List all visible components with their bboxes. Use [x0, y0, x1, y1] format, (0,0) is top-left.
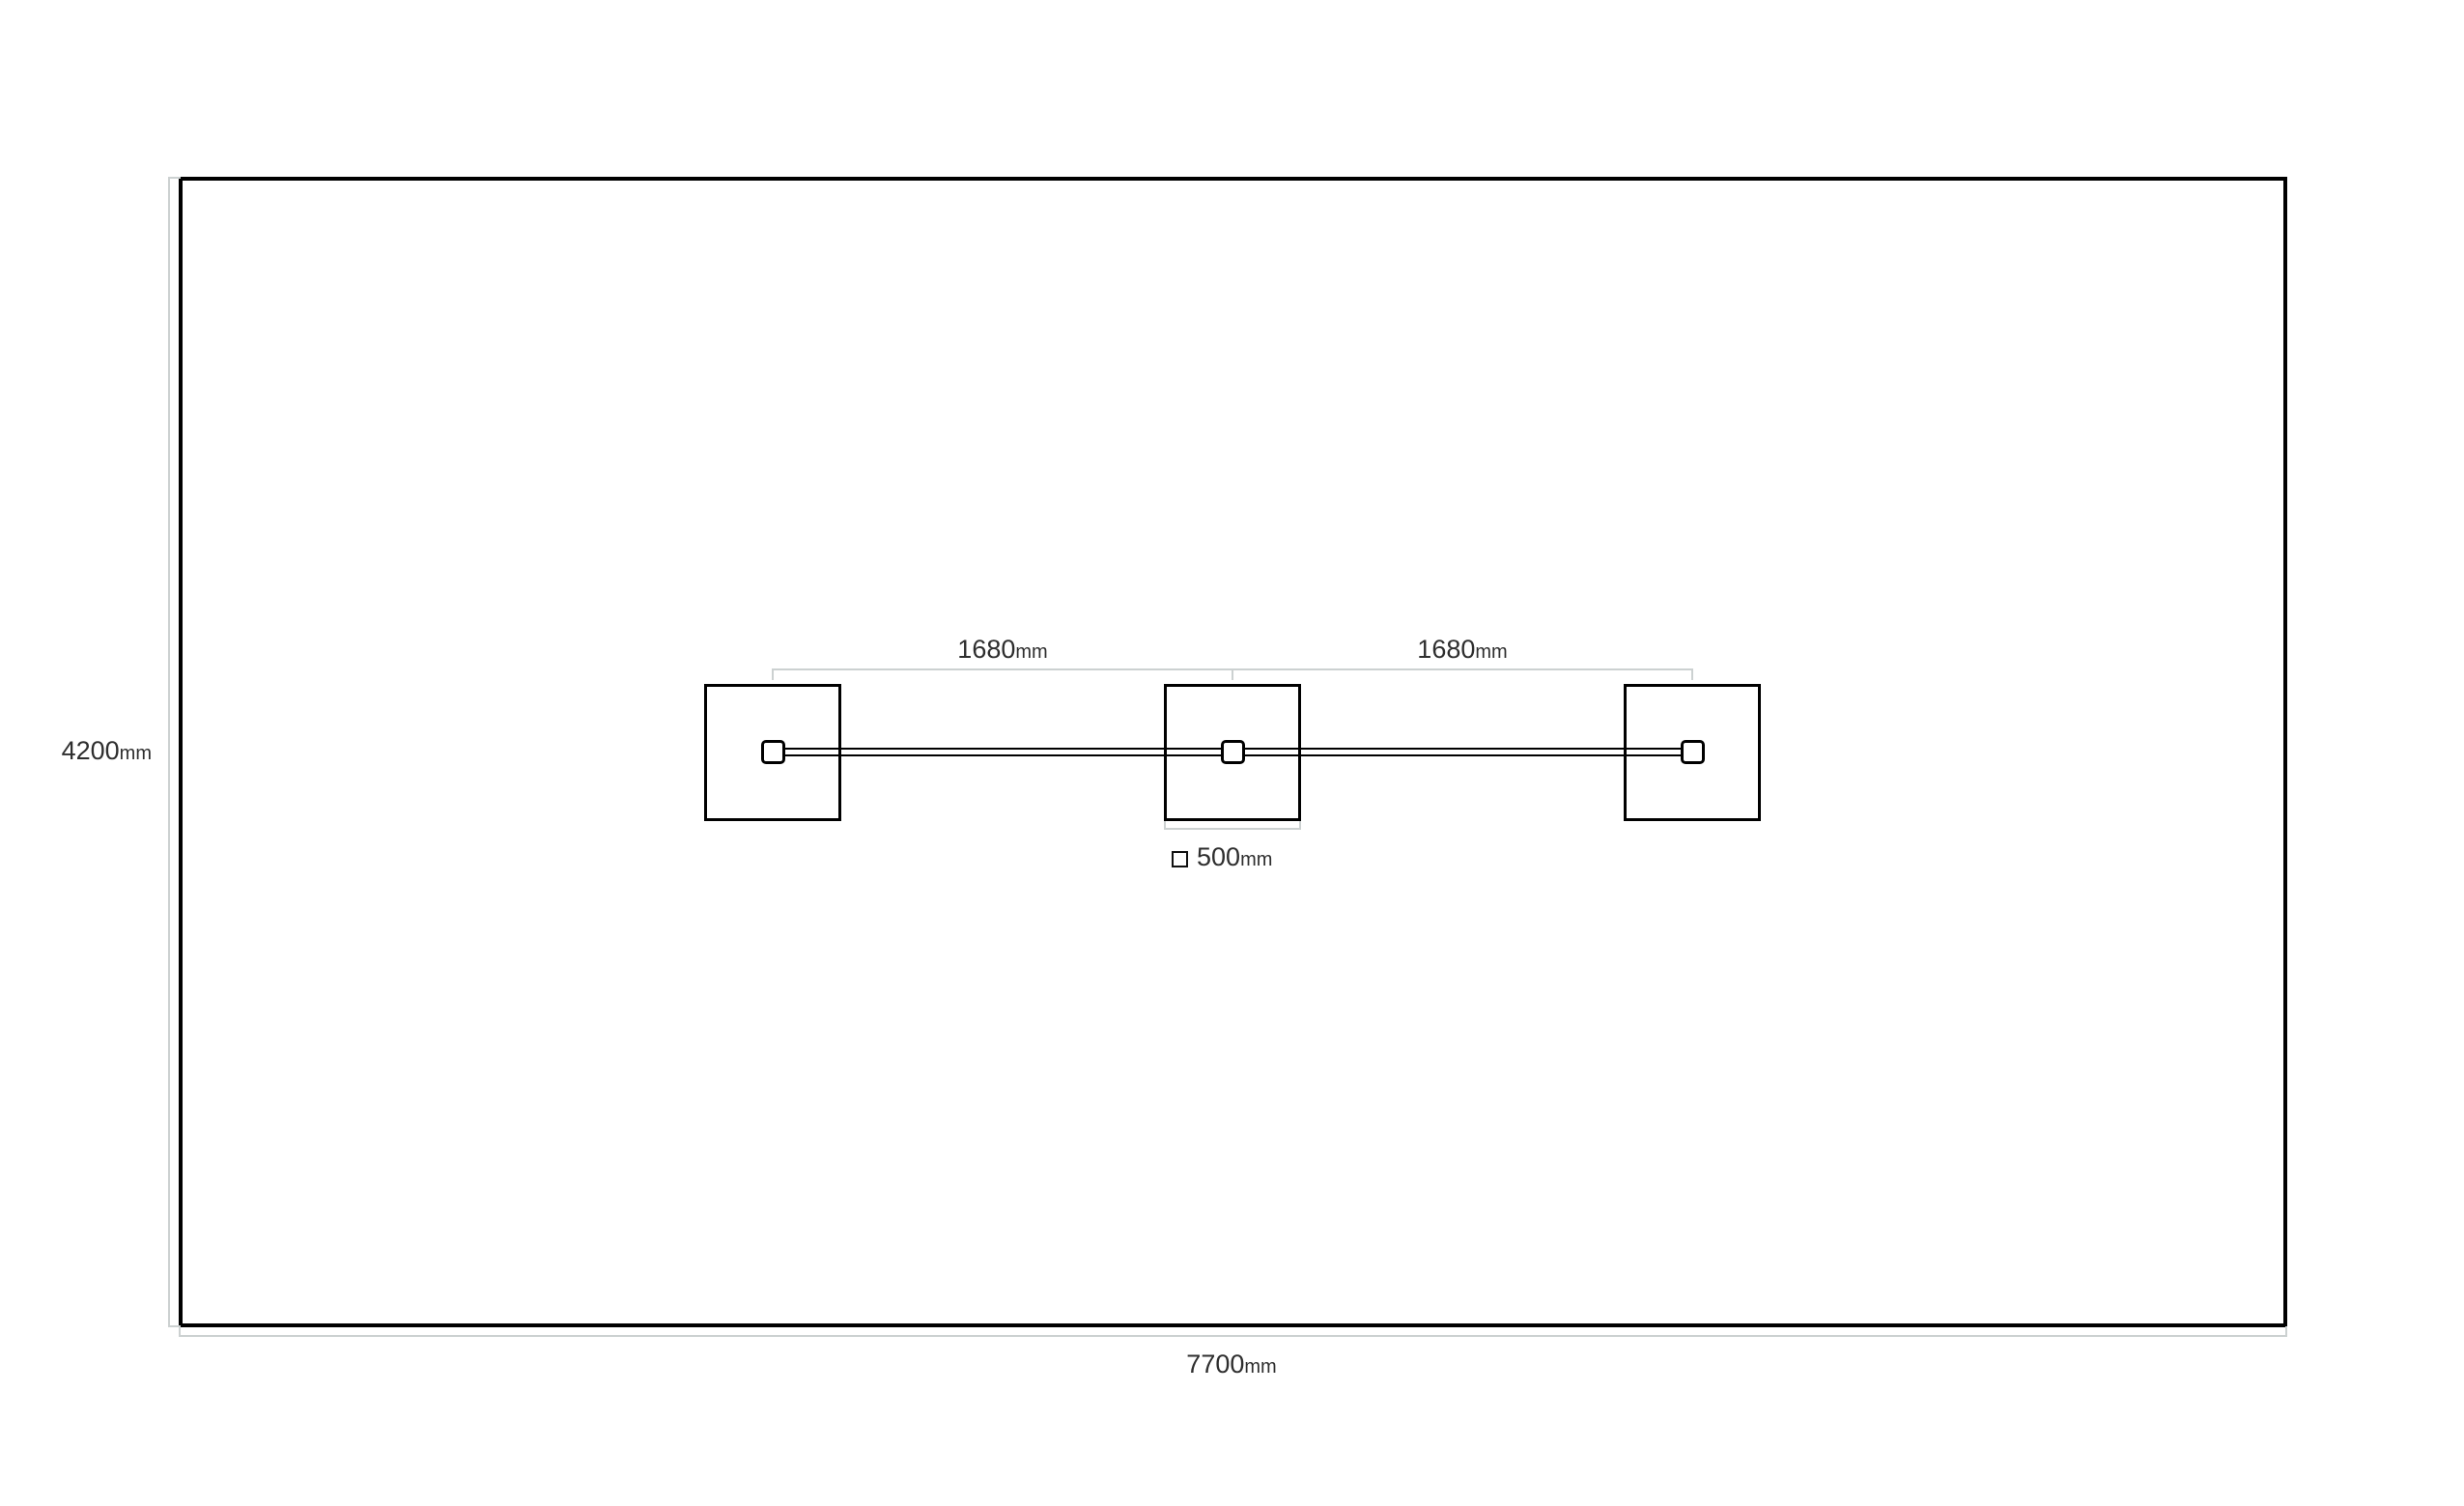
- legend-size-unit: mm: [1240, 849, 1272, 870]
- spacing-left-unit: mm: [1015, 641, 1047, 663]
- square-swatch-icon: [1172, 851, 1188, 867]
- width-dimension-line: [179, 1335, 2287, 1337]
- spacing-dimension-tick-center: [1232, 668, 1233, 680]
- spacing-right-label: 1680mm: [1366, 637, 1559, 666]
- height-dimension-tick-top: [168, 177, 181, 179]
- room-width-unit: mm: [1244, 1356, 1276, 1378]
- fixture-size-bracket-tick-right: [1299, 821, 1301, 830]
- legend-size-label: 500mm: [1197, 844, 1272, 873]
- height-dimension-line: [168, 177, 170, 1327]
- width-dimension-tick-left: [179, 1326, 181, 1337]
- room-height-label: 4200mm: [16, 738, 152, 767]
- fixture-size-bracket-tick-left: [1164, 821, 1166, 830]
- connector-node-center: [1221, 740, 1245, 764]
- room-height-unit: mm: [120, 743, 152, 764]
- room-height-value: 4200: [62, 736, 120, 765]
- connector-node-right: [1681, 740, 1705, 764]
- room-width-label: 7700mm: [1135, 1351, 1328, 1380]
- spacing-right-unit: mm: [1475, 641, 1507, 663]
- spacing-right-value: 1680: [1417, 635, 1475, 664]
- spacing-left-value: 1680: [957, 635, 1015, 664]
- spacing-dimension-tick-left: [772, 668, 774, 680]
- spacing-dimension-tick-right: [1691, 668, 1693, 680]
- connector-node-left: [761, 740, 785, 764]
- fixture-size-bracket: [1164, 828, 1301, 830]
- floor-plan-canvas[interactable]: 4200mm 7700mm 1680mm 1680mm 500mm: [0, 0, 2464, 1506]
- room-width-value: 7700: [1186, 1350, 1244, 1378]
- legend-size-value: 500: [1197, 842, 1240, 871]
- fixture-size-legend: 500mm: [1172, 844, 1272, 873]
- width-dimension-tick-right: [2285, 1326, 2287, 1337]
- spacing-left-label: 1680mm: [906, 637, 1099, 666]
